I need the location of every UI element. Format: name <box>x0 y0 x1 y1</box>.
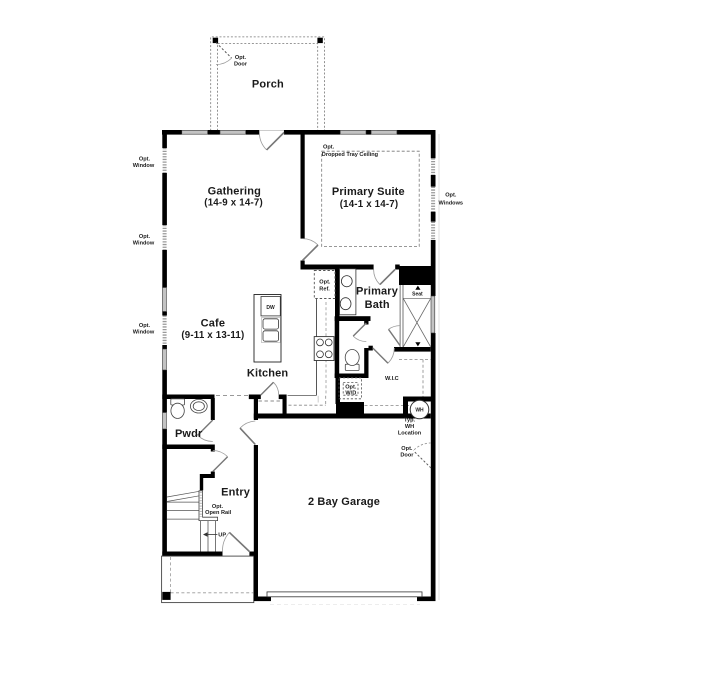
svg-text:(9-11 x 13-11): (9-11 x 13-11) <box>181 330 244 341</box>
svg-text:Opt.: Opt. <box>139 234 151 240</box>
svg-text:Pwdr: Pwdr <box>175 428 203 440</box>
svg-text:Dropped Tray Ceiling: Dropped Tray Ceiling <box>322 152 379 158</box>
svg-text:Opt.: Opt. <box>445 193 457 199</box>
svg-text:Primary Suite: Primary Suite <box>332 186 405 198</box>
svg-text:Opt.: Opt. <box>235 55 247 61</box>
svg-text:Opt.: Opt. <box>139 323 151 329</box>
svg-text:Gathering: Gathering <box>208 185 261 197</box>
svg-text:(14-9 x 14-7): (14-9 x 14-7) <box>204 198 263 209</box>
svg-text:Typ.: Typ. <box>404 418 416 424</box>
svg-text:Opt.: Opt. <box>323 144 335 150</box>
svg-text:Open Rail: Open Rail <box>205 510 232 516</box>
svg-text:Ref.: Ref. <box>319 286 330 292</box>
svg-text:W/D: W/D <box>345 390 356 396</box>
svg-text:Door: Door <box>234 61 248 67</box>
svg-text:WH: WH <box>405 424 414 430</box>
svg-text:Kitchen: Kitchen <box>247 367 289 379</box>
svg-text:DW: DW <box>266 305 275 311</box>
svg-text:2 Bay Garage: 2 Bay Garage <box>308 496 380 508</box>
svg-text:Opt.: Opt. <box>212 504 224 510</box>
svg-text:Cafe: Cafe <box>201 317 225 329</box>
svg-text:Location: Location <box>398 430 422 436</box>
svg-text:Seat: Seat <box>412 292 423 298</box>
svg-text:Window: Window <box>133 163 155 169</box>
svg-text:Window: Window <box>133 241 155 247</box>
svg-text:(14-1 x 14-7): (14-1 x 14-7) <box>340 199 399 210</box>
svg-text:Primary: Primary <box>356 286 399 298</box>
svg-text:Opt.: Opt. <box>139 156 151 162</box>
svg-text:Opt.: Opt. <box>401 446 413 452</box>
svg-text:WH: WH <box>415 407 424 413</box>
svg-text:Window: Window <box>133 330 155 336</box>
svg-text:Bath: Bath <box>365 299 390 311</box>
svg-text:Windows: Windows <box>439 200 464 206</box>
svg-text:Porch: Porch <box>252 79 284 91</box>
svg-text:UP: UP <box>218 532 226 538</box>
svg-text:Door: Door <box>400 452 414 458</box>
svg-text:Entry: Entry <box>221 487 251 499</box>
svg-text:W.I.C: W.I.C <box>385 376 399 382</box>
svg-text:Opt.: Opt. <box>319 279 331 285</box>
